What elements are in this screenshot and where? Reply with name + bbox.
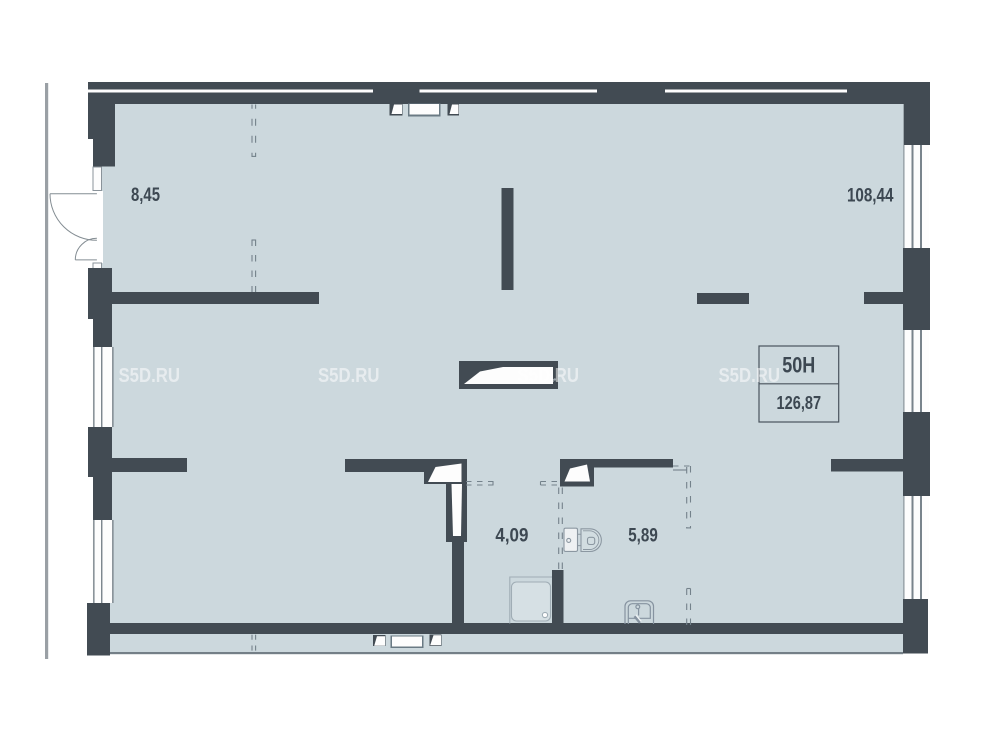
svg-text:108,44: 108,44: [847, 185, 894, 206]
svg-text:S5D.RU: S5D.RU: [518, 364, 580, 387]
svg-text:50Н: 50Н: [782, 353, 815, 378]
svg-text:S5D.RU: S5D.RU: [719, 364, 781, 387]
svg-text:126,87: 126,87: [777, 392, 822, 413]
svg-text:S5D.RU: S5D.RU: [119, 364, 181, 387]
svg-text:S5D.RU: S5D.RU: [318, 364, 380, 387]
svg-text:5,89: 5,89: [628, 525, 658, 546]
svg-text:8,45: 8,45: [131, 185, 160, 206]
svg-text:4,09: 4,09: [495, 525, 528, 546]
